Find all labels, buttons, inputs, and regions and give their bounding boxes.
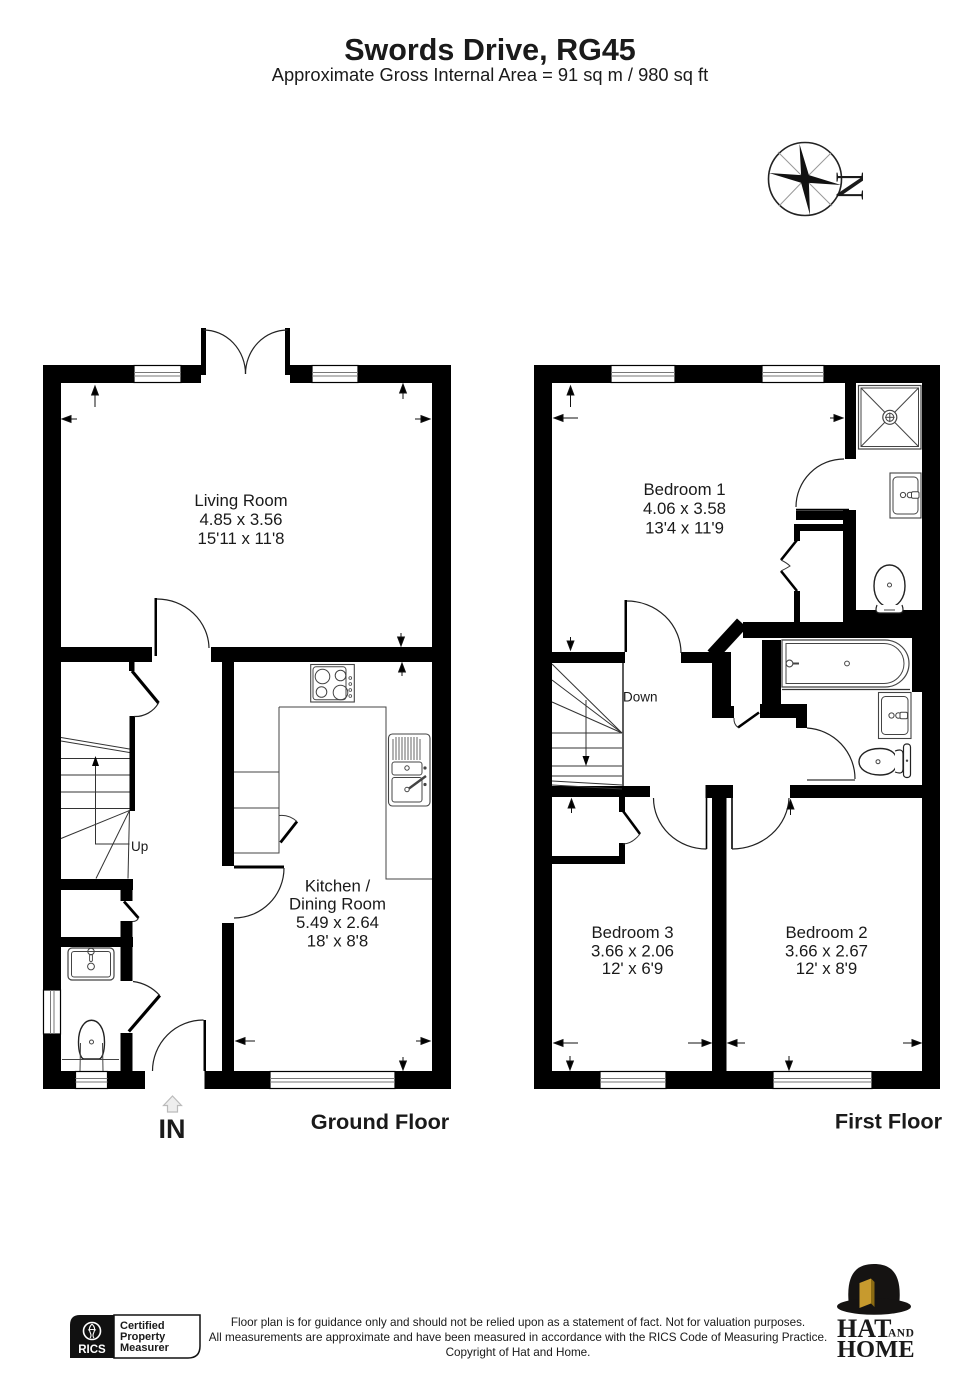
svg-text:4.06 x 3.58: 4.06 x 3.58 [643, 499, 726, 518]
svg-text:5.49 x 2.64: 5.49 x 2.64 [296, 913, 379, 932]
svg-text:Down: Down [623, 690, 658, 705]
svg-text:3.66 x 2.67: 3.66 x 2.67 [785, 941, 868, 960]
svg-text:Bedroom 2: Bedroom 2 [785, 923, 867, 942]
svg-text:IN: IN [159, 1114, 186, 1144]
svg-text:Dining Room: Dining Room [289, 895, 386, 914]
svg-text:Living Room: Living Room [194, 491, 287, 510]
svg-text:Swords Drive, RG45: Swords Drive, RG45 [344, 33, 636, 67]
svg-text:Bedroom 1: Bedroom 1 [643, 480, 725, 499]
svg-text:15'11 x 11'8: 15'11 x 11'8 [198, 529, 285, 548]
svg-text:3.66 x 2.06: 3.66 x 2.06 [591, 941, 674, 960]
svg-text:12' x 8'9: 12' x 8'9 [796, 959, 857, 978]
svg-text:Floor plan is for guidance onl: Floor plan is for guidance only and shou… [231, 1316, 805, 1329]
svg-text:All measurements are approxima: All measurements are approximate and hav… [209, 1331, 827, 1344]
svg-text:4.85 x 3.56: 4.85 x 3.56 [199, 510, 282, 529]
svg-text:Kitchen /: Kitchen / [305, 877, 371, 896]
svg-text:18' x 8'8: 18' x 8'8 [307, 932, 368, 951]
svg-text:Up: Up [131, 839, 148, 854]
svg-text:Measurer: Measurer [120, 1342, 170, 1354]
svg-text:RICS: RICS [78, 1344, 106, 1356]
svg-text:Approximate Gross Internal Are: Approximate Gross Internal Area = 91 sq … [272, 64, 708, 85]
svg-text:HOME: HOME [837, 1336, 915, 1363]
svg-text:Ground Floor: Ground Floor [311, 1109, 450, 1134]
svg-text:Copyright of Hat and Home.: Copyright of Hat and Home. [446, 1346, 591, 1359]
svg-text:Bedroom 3: Bedroom 3 [591, 923, 673, 942]
svg-text:13'4 x 11'9: 13'4 x 11'9 [645, 519, 724, 538]
svg-text:First Floor: First Floor [835, 1109, 943, 1134]
svg-text:N: N [827, 172, 872, 201]
svg-text:12' x 6'9: 12' x 6'9 [602, 959, 663, 978]
